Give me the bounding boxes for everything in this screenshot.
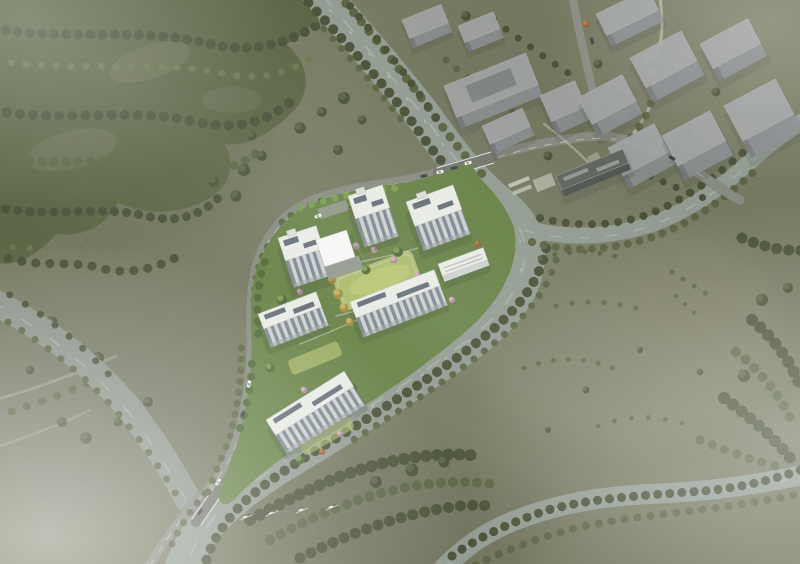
global-haze [0,0,800,564]
aerial-rendering [0,0,800,564]
fog-overlays [0,0,800,564]
rendering-canvas [0,0,800,564]
